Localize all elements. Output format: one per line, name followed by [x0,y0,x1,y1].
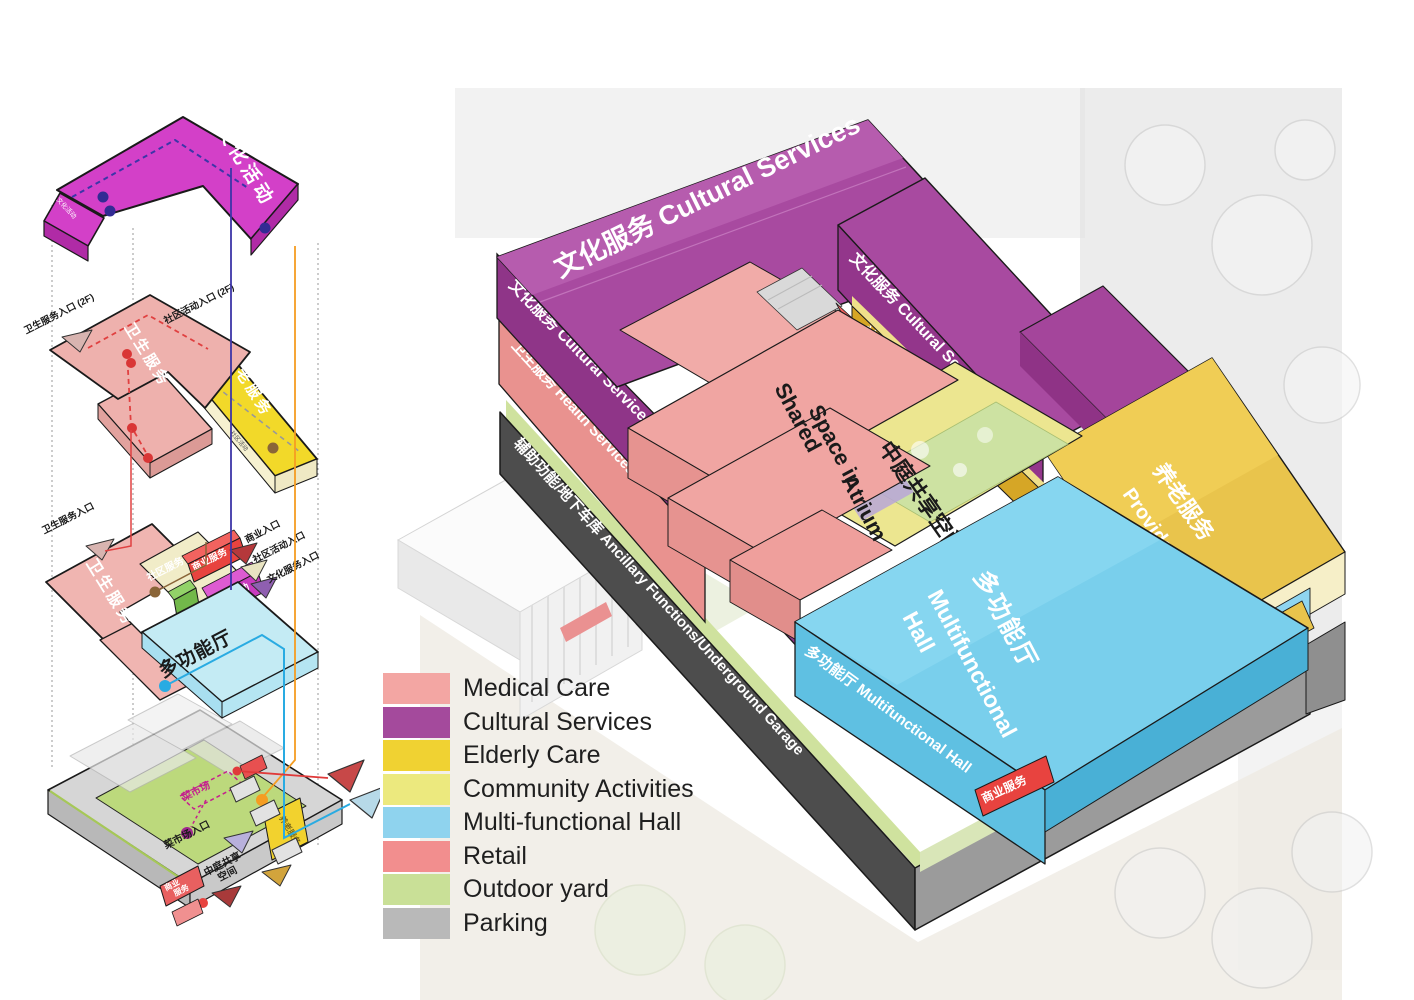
tree-icon [1212,888,1312,988]
legend-label: Cultural Services [463,708,652,737]
legend-swatch-retail [383,841,450,872]
tree-icon [705,925,785,1000]
legend-row: Community Activities [383,773,694,807]
legend-row: Retail [383,840,694,874]
tree-icon [1115,848,1205,938]
tree-icon [1212,195,1312,295]
garden-speckle [977,427,993,443]
legend-label: Multi-functional Hall [463,808,681,837]
tree-icon [1125,125,1205,205]
architectural-function-diagram: 菜市场 菜市场入口 中庭共享空间 商业服务 养老服务 商业服务 [0,0,1414,1000]
route-node [122,349,132,359]
legend-row: Medical Care [383,672,694,706]
legend-swatch-yard [383,874,450,905]
legend-label: Elderly Care [463,741,601,770]
connector-elderly [263,246,295,797]
cultural-floor: 文化活动 文化活动 [44,117,298,261]
ground-floor: 商业服务 文化活动 多功能厅 卫生服务 社区服务 卫生服务入口 商业入口 社区活… [40,500,321,718]
community-2f-entrance-label: 社区活动入口 (2F) [161,281,236,327]
route-node [105,206,116,217]
route-node [127,423,137,433]
legend-row: Outdoor yard [383,873,694,907]
legend-label: Parking [463,909,548,938]
health-floor-2f: 卫生服务 卫生服务 卫生服务 卫生服务入口 (2F) 社区活动入口 (2F) [22,281,250,478]
legend-label: Outdoor yard [463,875,609,904]
legend-row: Cultural Services [383,706,694,740]
route-node [260,223,271,234]
legend-label: Retail [463,842,527,871]
site-flag-blue-icon [350,786,380,818]
legend-swatch-hall [383,807,450,838]
garden-speckle [953,463,967,477]
route-node [126,358,136,368]
tree-icon [1275,120,1335,180]
legend-row: Parking [383,907,694,941]
atrium-flag2-icon [262,865,291,886]
legend: Medical Care Cultural Services Elderly C… [383,672,694,940]
legend-row: Multi-functional Hall [383,806,694,840]
legend-swatch-cultural [383,707,450,738]
site-flag-red-icon [328,760,364,792]
tree-icon [1284,347,1360,423]
exploded-axon-diagram: 菜市场 菜市场入口 中庭共享空间 商业服务 养老服务 商业服务 [0,0,380,1000]
elderly-route-node2 [268,443,279,454]
route-node [98,192,109,203]
legend-swatch-community [383,774,450,805]
legend-label: Community Activities [463,775,694,804]
legend-label: Medical Care [463,674,610,703]
legend-row: Elderly Care [383,739,694,773]
base-floor: 菜市场 菜市场入口 中庭共享空间 商业服务 养老服务 [48,694,380,926]
retail-entrance-label: 商业入口 [243,518,282,546]
health-entrance-label: 卫生服务入口 [40,500,96,537]
tree-icon [1292,812,1372,892]
legend-swatch-elderly [383,740,450,771]
legend-swatch-medical [383,673,450,704]
legend-swatch-parking [383,908,450,939]
route-node [143,453,153,463]
